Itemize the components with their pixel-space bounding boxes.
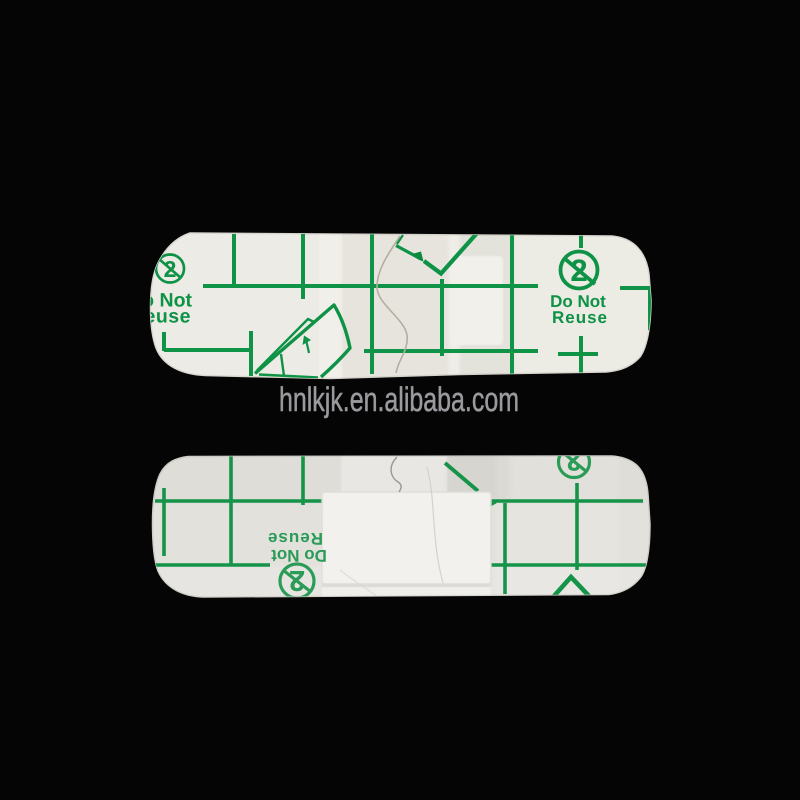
svg-text:Reuse: Reuse xyxy=(552,308,608,327)
svg-text:Reuse: Reuse xyxy=(267,529,323,548)
svg-text:hnlkjk.en.alibaba.com: hnlkjk.en.alibaba.com xyxy=(279,381,519,419)
svg-text:Do Not: Do Not xyxy=(271,546,327,565)
